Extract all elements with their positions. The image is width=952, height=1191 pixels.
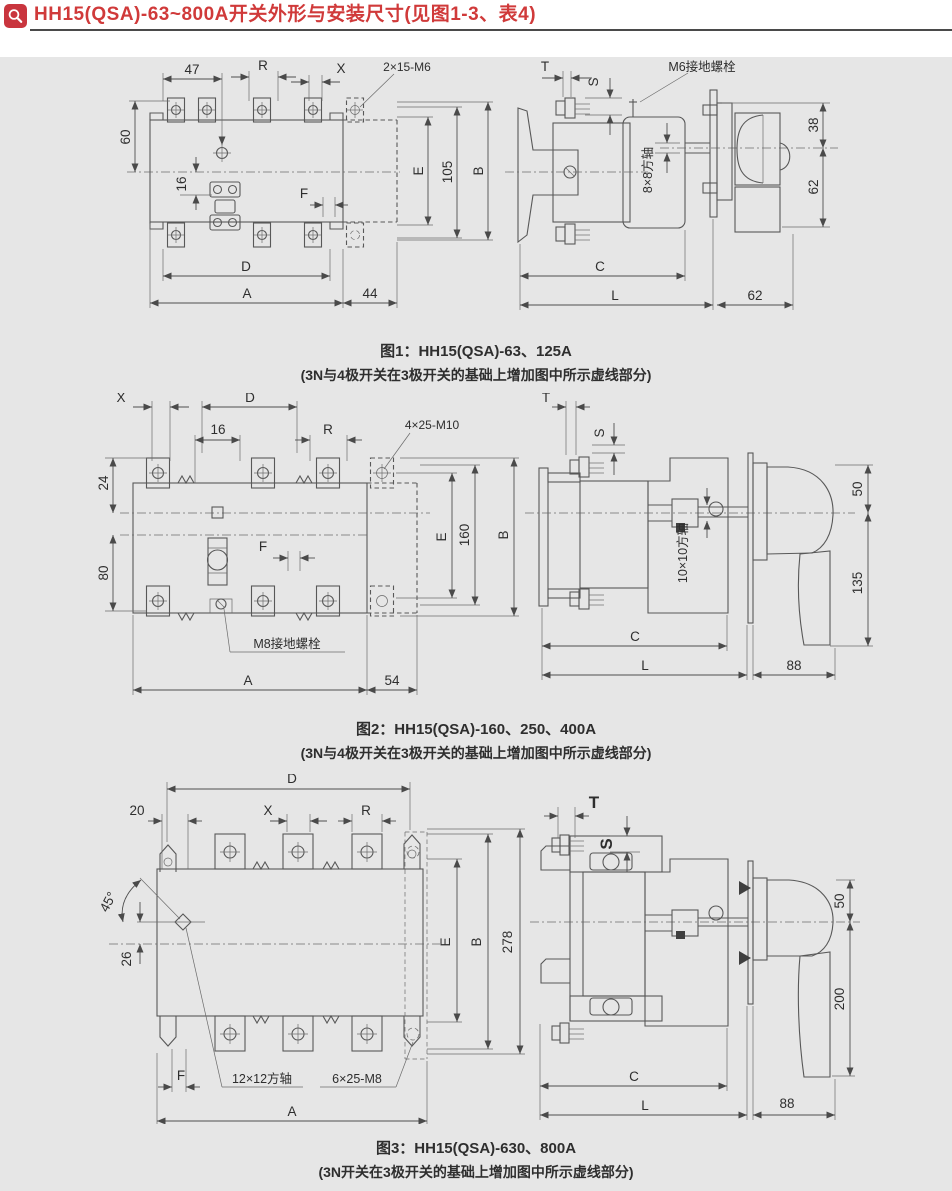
screw-spec-label: 4×25-M10 [405,418,460,432]
dim-F-label: F [300,186,308,201]
figure-1-note: (3N与4极开关在3极开关的基础上增加图中所示虚线部分) [0,363,952,387]
screw-spec-label: 2×15-M6 [383,60,431,74]
dim-S-label: S [592,428,607,437]
dim-T-label: T [589,793,600,812]
dim-38-label: 38 [806,117,821,132]
figure-3-title: 图3：HH15(QSA)-630、800A [0,1138,952,1160]
dim-X-label: X [336,61,345,76]
page-title: HH15(QSA)-63~800A开关外形与安装尺寸(见图1-3、表4) [34,3,536,27]
magnifier-icon [4,4,27,28]
dim-278-label: 278 [500,931,515,954]
dim-160-label: 160 [457,524,472,547]
dim-B-label: B [471,166,486,175]
datasheet-page: HH15(QSA)-63~800A开关外形与安装尺寸(见图1-3、表4) [0,0,952,1191]
dim-62-label: 62 [806,179,821,194]
fig3-side-view: T S 50 200 C L 88 [530,793,860,1120]
dim-L-label: L [641,1098,649,1113]
header-divider [30,29,952,31]
dim-50-label: 50 [832,893,847,908]
dim-44-label: 44 [362,286,378,301]
dim-D-label: D [245,393,255,405]
dim-B-label: B [469,937,484,946]
dim-A-label: A [243,673,252,688]
figure-1-caption: 图1：HH15(QSA)-63、125A (3N与4极开关在3极开关的基础上增加… [0,338,952,393]
fig1-front-view: 47 R X 2×15-M6 60 16 F E [118,58,493,308]
dim-88-label: 88 [786,658,801,673]
dim-B-label: B [496,530,511,539]
dim-C-label: C [629,1069,639,1084]
figure-3-note: (3N开关在3极开关的基础上增加图中所示虚线部分) [0,1160,952,1184]
dim-S-label: S [597,838,616,849]
dim-E-label: E [434,532,449,541]
figure-3-caption: 图3：HH15(QSA)-630、800A (3N开关在3极开关的基础上增加图中… [0,1124,952,1191]
square-shaft-label: 8×8方轴 [640,147,655,193]
dim-200-label: 200 [832,988,847,1011]
dim-105-label: 105 [440,161,455,184]
dim-54-label: 54 [384,673,400,688]
dim-47-label: 47 [184,62,199,77]
dim-X-label: X [263,803,272,818]
dim-E-label: E [438,937,453,946]
dim-X-label: X [116,393,125,405]
dim-F-label: F [259,539,267,554]
figure-1: 47 R X 2×15-M6 60 16 F E [0,57,952,393]
dim-135-label: 135 [850,572,865,595]
figure-1-title: 图1：HH15(QSA)-63、125A [0,341,952,363]
dim-24-label: 24 [96,475,111,491]
figure-3-drawing: 45° 26 D 20 X R E B [0,774,952,1124]
dim-62b-label: 62 [747,288,762,303]
fig2-side-view: 10×10方轴 T S 50 135 C [525,393,873,680]
dim-C-label: C [595,259,605,274]
square-shaft-label: 12×12方轴 [232,1071,292,1086]
fig3-front-view: 45° 26 D 20 X R E B [97,774,525,1124]
dim-L-label: L [611,288,619,303]
dim-L-label: L [641,658,649,673]
dim-50-label: 50 [850,481,865,496]
screw-spec-label: 6×25-M8 [332,1072,382,1086]
fig2-front-view: X D 16 R 4×25-M10 24 80 F [96,393,519,695]
ground-bolt-label: M6接地螺栓 [668,59,736,74]
dim-60-label: 60 [118,129,133,144]
dim-T-label: T [541,59,549,74]
dim-88-label: 88 [779,1096,794,1111]
dim-C-label: C [630,629,640,644]
dim-26-label: 26 [119,951,134,966]
figure-2-caption: 图2：HH15(QSA)-160、250、400A (3N与4极开关在3极开关的… [0,714,952,774]
dim-R-label: R [258,58,268,73]
dim-20-label: 20 [129,803,144,818]
dim-T-label: T [542,393,550,405]
dim-16-label: 16 [174,176,189,191]
dim-16-label: 16 [210,422,225,437]
figure-2: X D 16 R 4×25-M10 24 80 F [0,393,952,774]
figure-3: 45° 26 D 20 X R E B [0,774,952,1191]
fig1-side-view: M6接地螺栓 8×8方轴 T S [505,59,838,310]
dim-45deg-label: 45° [97,889,120,914]
ground-bolt-label: M8接地螺栓 [253,636,321,651]
dim-D-label: D [287,774,297,786]
dim-R-label: R [323,422,333,437]
page-header: HH15(QSA)-63~800A开关外形与安装尺寸(见图1-3、表4) [0,0,952,57]
figure-1-drawing: 47 R X 2×15-M6 60 16 F E [0,57,952,338]
dim-80-label: 80 [96,565,111,580]
dim-R-label: R [361,803,371,818]
dim-A-label: A [242,286,251,301]
square-shaft-label: 10×10方轴 [675,523,690,583]
dim-A-label: A [287,1104,296,1119]
figure-2-drawing: X D 16 R 4×25-M10 24 80 F [0,393,952,714]
figure-2-note: (3N与4极开关在3极开关的基础上增加图中所示虚线部分) [0,741,952,765]
dim-D-label: D [241,259,251,274]
dim-S-label: S [586,77,601,86]
figure-2-title: 图2：HH15(QSA)-160、250、400A [0,719,952,741]
drawing-canvas: 47 R X 2×15-M6 60 16 F E [0,57,952,1191]
dim-E-label: E [411,166,426,175]
dim-F-label: F [177,1068,185,1083]
